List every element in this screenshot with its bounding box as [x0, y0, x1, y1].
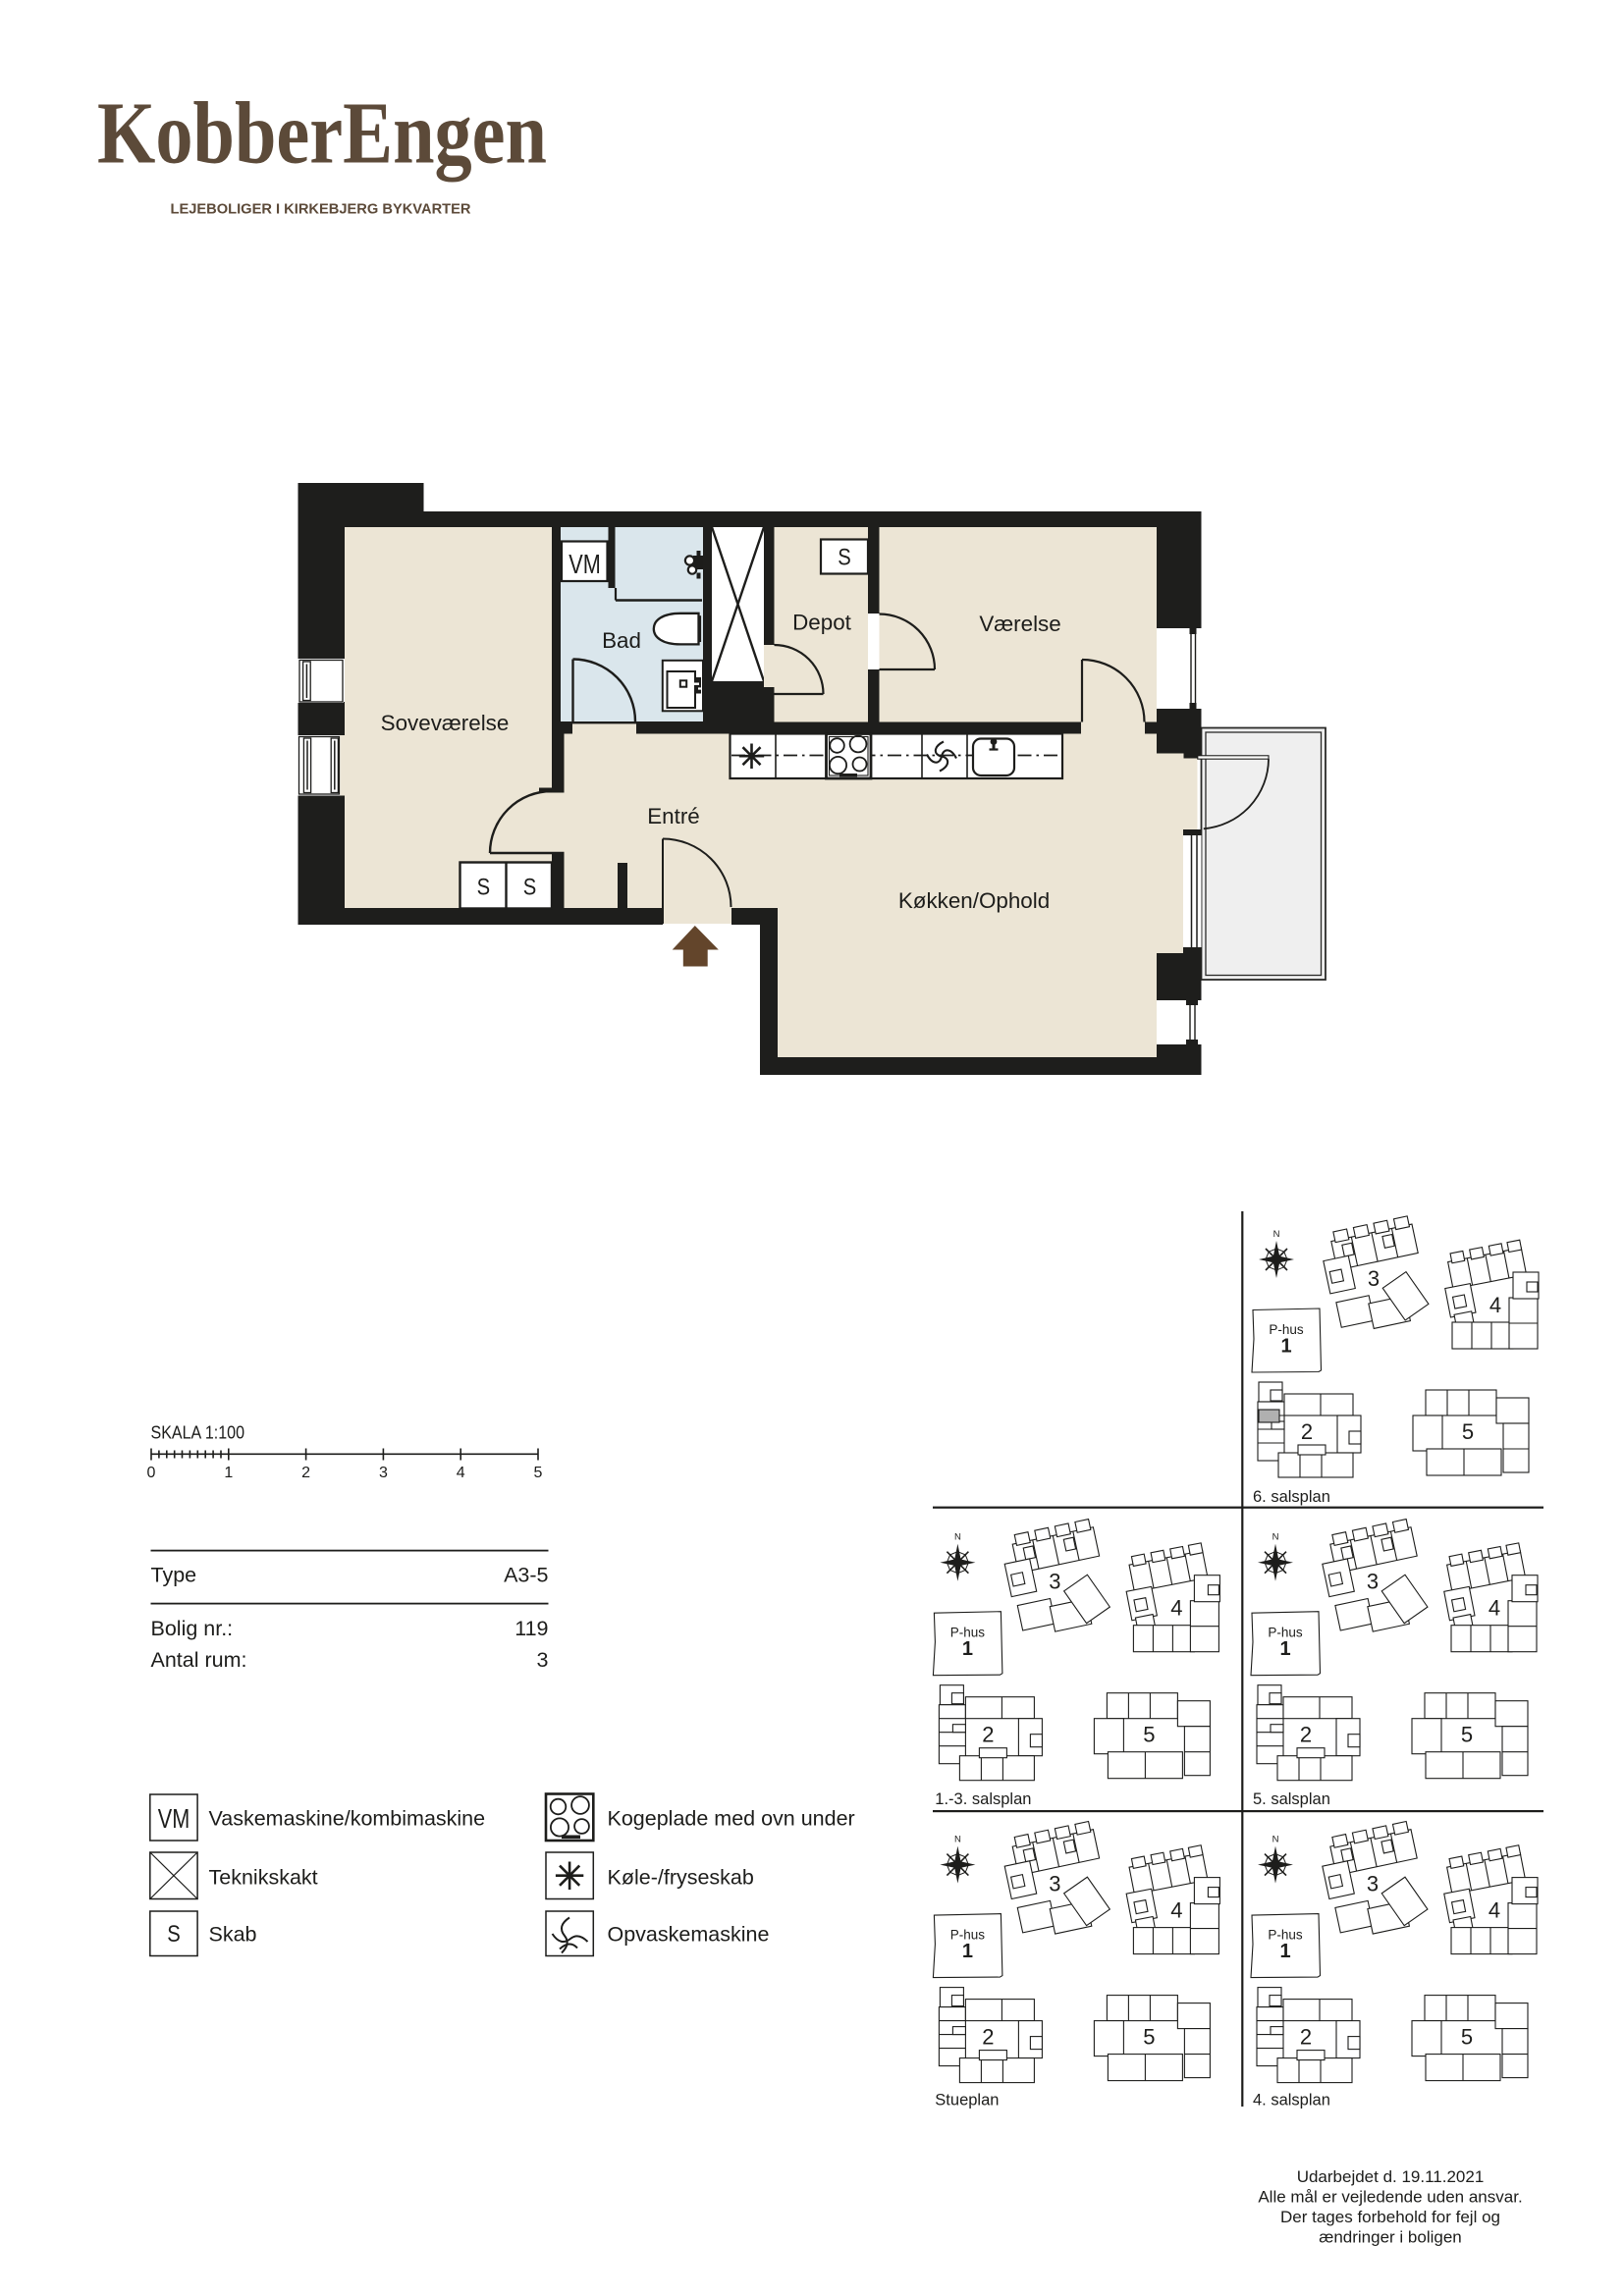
svg-text:S: S [167, 1921, 181, 1948]
svg-text:S: S [477, 875, 491, 901]
svg-text:Bolig nr.:: Bolig nr.: [151, 1617, 234, 1640]
svg-text:Stueplan: Stueplan [935, 2092, 999, 2109]
svg-text:1: 1 [224, 1465, 233, 1481]
svg-text:A3-5: A3-5 [504, 1564, 548, 1587]
svg-text:6. salsplan: 6. salsplan [1253, 1488, 1330, 1506]
svg-text:KobberEngen: KobberEngen [97, 83, 547, 183]
svg-text:3: 3 [379, 1465, 388, 1481]
svg-text:119: 119 [514, 1617, 548, 1640]
svg-text:S: S [523, 875, 537, 901]
svg-text:Alle mål er vejledende uden an: Alle mål er vejledende uden ansvar. [1258, 2188, 1522, 2207]
svg-text:Værelse: Værelse [979, 612, 1060, 636]
svg-text:Depot: Depot [792, 611, 852, 635]
svg-text:VM: VM [158, 1803, 190, 1834]
svg-text:Teknikskakt: Teknikskakt [209, 1866, 318, 1890]
svg-text:LEJEBOLIGER I KIRKEBJERG BYKVA: LEJEBOLIGER I KIRKEBJERG BYKVARTER [171, 202, 472, 218]
svg-text:4. salsplan: 4. salsplan [1253, 2092, 1330, 2109]
svg-text:Skab: Skab [209, 1923, 257, 1947]
svg-text:Soveværelse: Soveværelse [381, 711, 510, 735]
svg-text:Køkken/Ophold: Køkken/Ophold [898, 888, 1050, 913]
svg-text:Vaskemaskine/kombimaskine: Vaskemaskine/kombimaskine [209, 1807, 486, 1831]
svg-text:VM: VM [568, 549, 601, 579]
svg-text:ændringer i boligen: ændringer i boligen [1319, 2228, 1462, 2247]
svg-text:0: 0 [147, 1465, 156, 1481]
svg-text:Entré: Entré [647, 804, 700, 828]
svg-text:5. salsplan: 5. salsplan [1253, 1790, 1330, 1808]
svg-text:SKALA 1:100: SKALA 1:100 [151, 1423, 245, 1443]
svg-text:1.-3. salsplan: 1.-3. salsplan [935, 1790, 1031, 1808]
svg-text:Type: Type [151, 1564, 197, 1587]
svg-text:Kogeplade med ovn under: Kogeplade med ovn under [608, 1807, 855, 1831]
svg-text:3: 3 [537, 1648, 549, 1672]
svg-text:4: 4 [457, 1465, 465, 1481]
svg-text:Antal rum:: Antal rum: [151, 1648, 247, 1672]
svg-text:5: 5 [534, 1465, 543, 1481]
svg-text:Bad: Bad [602, 628, 641, 653]
svg-text:Udarbejdet d. 19.11.2021: Udarbejdet d. 19.11.2021 [1297, 2167, 1485, 2186]
svg-text:S: S [838, 545, 851, 571]
svg-text:2: 2 [301, 1465, 310, 1481]
svg-text:Opvaskemaskine: Opvaskemaskine [608, 1923, 770, 1947]
svg-text:Køle-/fryseskab: Køle-/fryseskab [608, 1866, 754, 1890]
svg-text:Der tages forbehold for fejl o: Der tages forbehold for fejl og [1280, 2208, 1500, 2226]
